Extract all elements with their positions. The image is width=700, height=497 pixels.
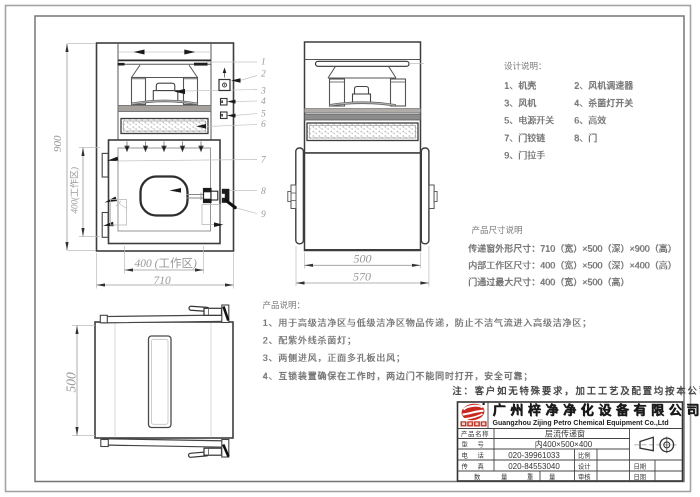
svg-text:电 话: 电 话	[462, 450, 488, 459]
svg-text:5: 5	[261, 110, 266, 120]
svg-text:400 (工作区): 400 (工作区)	[135, 257, 197, 270]
svg-text:产品名称: 产品名称	[461, 429, 489, 438]
svg-text:型 号: 型 号	[462, 439, 488, 448]
svg-text:层流传递窗: 层流传递窗	[545, 428, 585, 438]
svg-text:传 真: 传 真	[462, 461, 488, 470]
svg-text:500: 500	[64, 372, 79, 393]
svg-text:产品说明：: 产品说明：	[263, 300, 306, 310]
svg-text:400(工作区): 400(工作区)	[69, 167, 80, 214]
svg-text:量: 量	[549, 473, 556, 481]
svg-text:比例: 比例	[578, 450, 591, 459]
svg-text:900: 900	[52, 135, 64, 152]
svg-text:3: 3	[260, 87, 266, 97]
svg-text:设计: 设计	[578, 461, 591, 470]
svg-text:020-39961033: 020-39961033	[508, 451, 560, 460]
svg-text:020-84553040: 020-84553040	[508, 462, 560, 471]
svg-text:日期: 日期	[634, 473, 647, 481]
svg-text:数: 数	[474, 472, 481, 481]
svg-text:1: 1	[261, 58, 266, 68]
svg-text:重: 重	[527, 473, 533, 481]
svg-text:2: 2	[261, 70, 266, 80]
svg-text:量: 量	[501, 473, 508, 481]
svg-text:4: 4	[261, 97, 266, 107]
svg-text:审核: 审核	[578, 472, 591, 481]
svg-text:产品尺寸说明: 产品尺寸说明	[472, 225, 523, 235]
svg-text:500: 500	[354, 251, 372, 265]
svg-text:Guangzhou Zijing Petro Chemica: Guangzhou Zijing Petro Chemical Equipmen…	[493, 420, 669, 427]
svg-text:710: 710	[154, 275, 172, 287]
svg-text:日期: 日期	[634, 462, 647, 470]
svg-text:8: 8	[261, 187, 266, 197]
svg-text:内400×500×400: 内400×500×400	[535, 439, 593, 449]
svg-text:设计说明：: 设计说明：	[504, 61, 547, 71]
svg-text:广州梓净净化设备有限公司: 广州梓净净化设备有限公司	[493, 403, 700, 418]
svg-text:570: 570	[353, 270, 371, 284]
svg-text:6: 6	[261, 120, 266, 130]
svg-text:9: 9	[261, 210, 266, 220]
